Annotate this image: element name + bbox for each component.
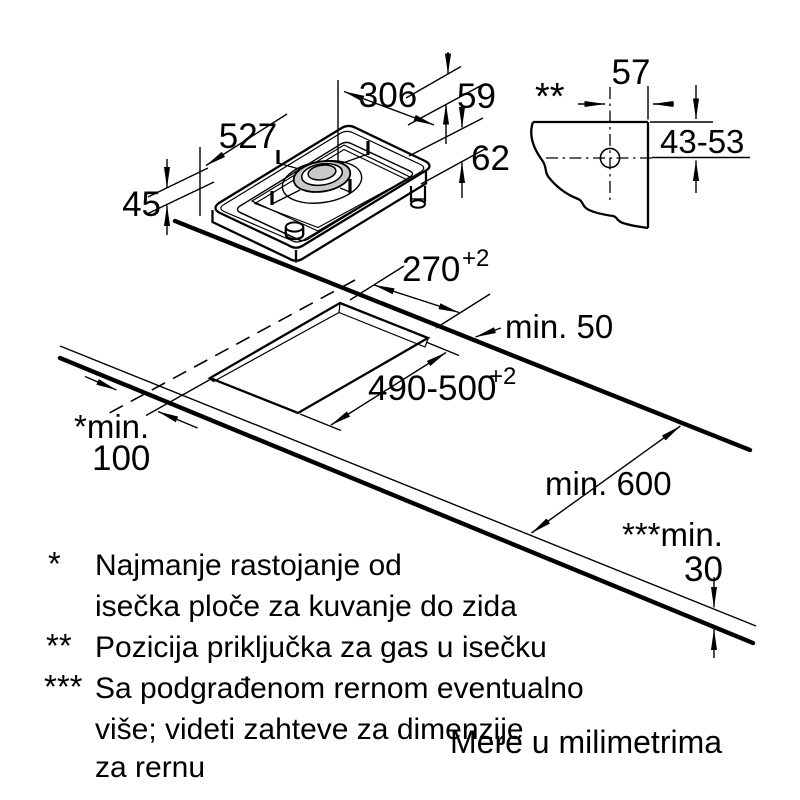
dim-43-53: 43-53 [660,123,744,160]
rear-gap-label: min. 50 [505,308,613,345]
dim-527: 527 [219,117,277,156]
cutout-depth-tolerance: +2 [489,363,516,390]
cutout-width-dim-line [374,285,459,313]
cutout-depth-ext-top [426,342,459,356]
detail-marker: ** [535,76,565,118]
footnote-3-line-3: za rernu [95,751,205,784]
footnote-3-marker: *** [44,668,83,705]
footnote-1-line-1: Najmanje rastojanje od [95,549,402,582]
detail-torn-edge [531,122,648,228]
wall-gap-value: 100 [92,439,150,478]
units-note: Mere u milimetrima [450,724,722,760]
thickness-label: ***min. [622,516,723,553]
dim-306: 306 [359,76,417,115]
footnote-1-line-2: isečka ploče za kuvanje do zida [95,590,517,623]
dim-57: 57 [612,53,651,92]
installation-diagram-page: 270 +2 min. 50 490-500 +2 *min. 100 min.… [0,0,800,800]
cutout-width-ext-right [436,294,490,328]
footnote-1-marker: * [48,545,61,582]
hob-installation-diagram: 270 +2 min. 50 490-500 +2 *min. 100 min.… [0,0,800,800]
footnote-3-line-1: Sa podgrađenom rernom eventualno [95,672,584,705]
gas-connection-detail: ** 57 43-53 [531,53,750,228]
wall-reference-dashed-line [102,280,355,417]
footnote-2-marker: ** [46,627,72,664]
dim-62: 62 [471,139,510,178]
dim-45: 45 [122,185,161,224]
cutout-width-ext-left [350,266,404,300]
hob-isometric-view: 527 306 59 62 45 [122,52,510,263]
rear-gap-leader [476,328,502,337]
cutout-width-tolerance: +2 [462,245,489,272]
dim-59: 59 [457,77,496,116]
footnote-2-line-1: Pozicija priključka za gas u isečku [95,631,547,664]
cutout-depth-dim: 490-500 [368,369,496,408]
front-depth-label: min. 600 [545,465,672,502]
thickness-value: 30 [684,550,723,589]
control-knob [286,222,303,239]
cutout-width-dim: 270 [402,250,460,289]
